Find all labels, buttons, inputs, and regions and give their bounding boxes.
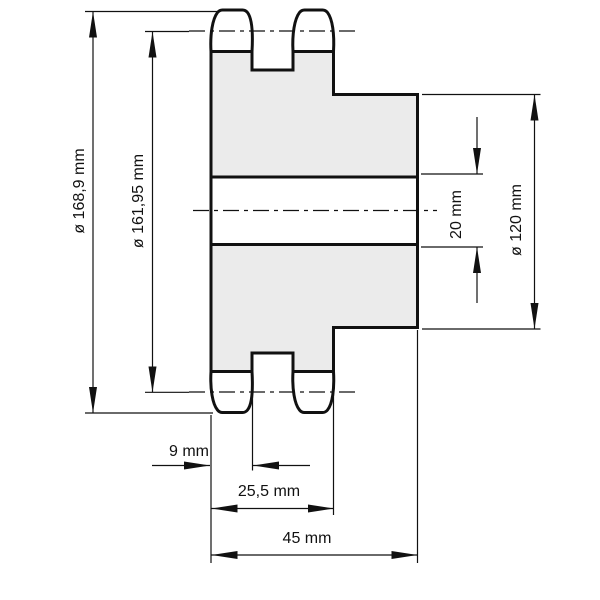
sprocket-technical-drawing: ø 168,9 mm ø 161,95 mm 20 mm ø 120 mm 9 …	[0, 0, 600, 600]
dim-tooth-width: 9 mm	[152, 443, 310, 470]
dim-label-hub-diameter: ø 120 mm	[508, 184, 525, 256]
dim-total-width: 45 mm	[212, 530, 418, 559]
arrow-down-icon	[89, 387, 97, 413]
dim-label-pitch-diameter: ø 161,95 mm	[130, 154, 147, 248]
arrow-left-icon	[212, 505, 238, 513]
dim-teeth-span-width: 25,5 mm	[212, 483, 335, 513]
arrow-down-icon	[473, 148, 481, 174]
body-upper-fill	[211, 52, 418, 178]
dim-label-teeth-span-width: 25,5 mm	[238, 483, 300, 500]
dim-bore-diameter: 20 mm	[448, 117, 481, 303]
dim-hub-diameter: ø 120 mm	[508, 95, 538, 330]
arrow-down-icon	[531, 303, 539, 329]
arrow-up-icon	[89, 12, 97, 38]
arrow-left-icon	[212, 551, 238, 559]
arrow-up-icon	[531, 95, 539, 121]
arrow-right-icon	[184, 462, 210, 470]
dim-outer-diameter: ø 168,9 mm	[71, 12, 97, 414]
dim-label-bore-diameter: 20 mm	[448, 190, 465, 239]
sprocket-body-fill	[211, 52, 418, 372]
drawing-canvas: ø 168,9 mm ø 161,95 mm 20 mm ø 120 mm 9 …	[0, 0, 600, 600]
dim-label-outer-diameter: ø 168,9 mm	[71, 148, 88, 233]
arrow-up-icon	[149, 32, 157, 58]
body-lower-fill	[211, 245, 418, 372]
arrow-right-icon	[392, 551, 418, 559]
arrow-up-icon	[473, 247, 481, 273]
dim-label-tooth-width: 9 mm	[169, 443, 209, 460]
arrow-right-icon	[308, 505, 334, 513]
dim-label-total-width: 45 mm	[283, 530, 332, 547]
arrow-down-icon	[149, 367, 157, 393]
arrow-left-icon	[253, 462, 279, 470]
dim-pitch-diameter: ø 161,95 mm	[130, 32, 156, 393]
